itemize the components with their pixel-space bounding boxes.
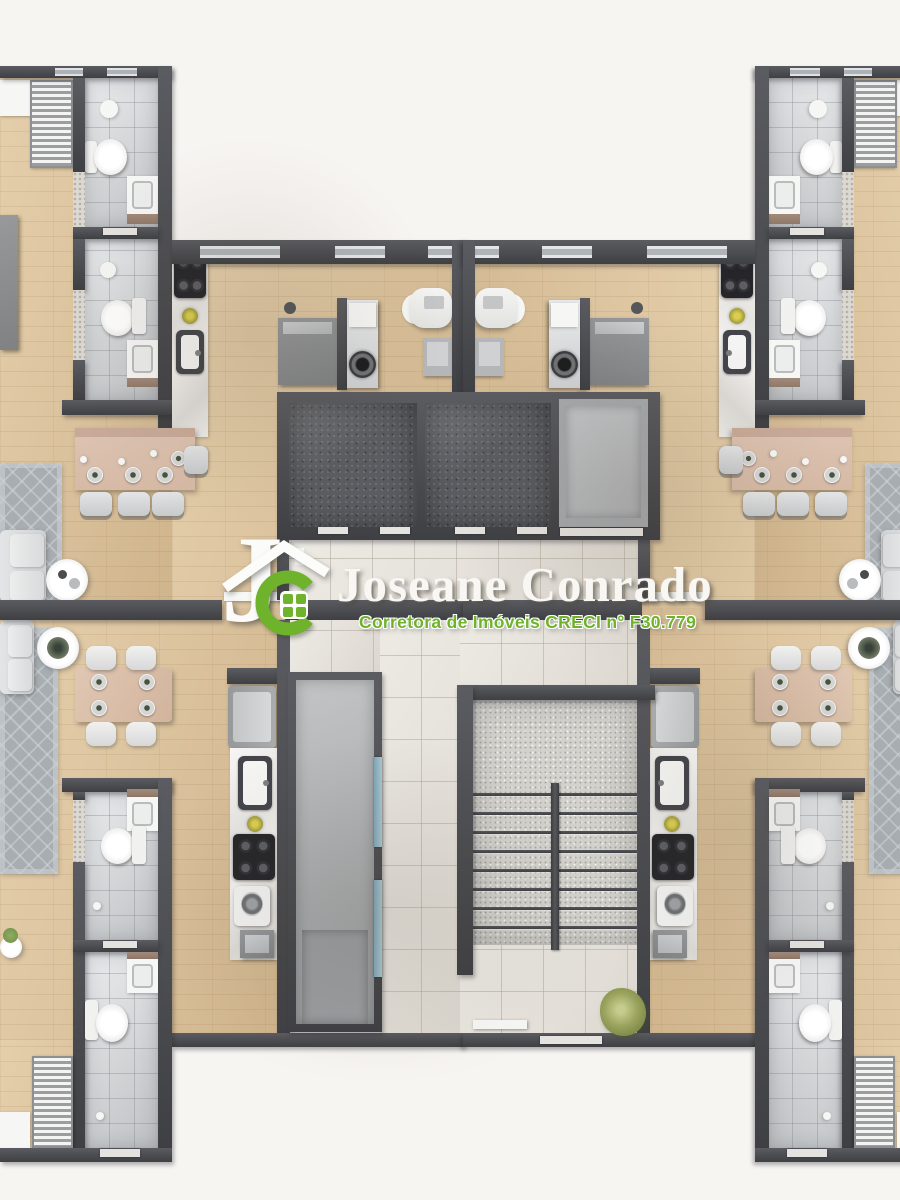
side-table [839,559,881,601]
glass-icon [80,456,87,463]
round-sink-icon [809,100,827,118]
window-icon [844,68,872,76]
fridge-icon [651,686,699,748]
washer-lid [349,303,376,327]
place-setting-icon [741,451,756,466]
kitchen-sink [655,756,689,810]
plant-icon [3,928,18,943]
side-table [46,559,88,601]
floral-centerpiece-icon [47,637,69,659]
wall [842,792,854,800]
washer-lid [551,303,578,327]
wall [73,862,85,1148]
wall [73,360,85,400]
wall [705,600,900,620]
low-cabinet-inner [245,935,269,953]
wall [62,400,172,415]
door-threshold-mosaic [73,800,85,862]
wall [755,1148,900,1162]
glass-icon [150,450,157,457]
wall [463,1033,755,1047]
wall [842,78,854,172]
wall [457,685,473,975]
kitchen-sink [238,756,272,810]
wall [637,620,650,1040]
dining-chair [771,646,801,670]
plant-icon [600,988,646,1036]
floor-plan-image: J Joseane Conrado Corretora de Imóveis C… [0,0,900,1200]
glass-icon [840,456,847,463]
bar-stool [152,492,184,516]
dining-chair [126,646,156,670]
glass-icon [770,450,777,457]
door-leaf [473,1020,527,1029]
vanity-counter [127,789,158,797]
bar-stool [719,446,743,474]
sofa-cushion [895,659,900,691]
vanity-counter [769,789,800,797]
fruit-bowl-icon [729,308,745,324]
dining-table [75,668,172,722]
door-threshold [790,941,824,948]
washer-porthole-icon [551,351,578,378]
round-sink-icon [100,262,116,278]
round-sink-icon [100,100,118,118]
bar-stool [118,492,150,516]
dining-chair [86,722,116,746]
door-threshold-mosaic [842,290,854,360]
cabinet [0,80,30,116]
dining-table [755,668,852,722]
laptop-icon [483,296,503,309]
vanity-sink [127,176,158,214]
tv-cabinet [0,215,18,350]
fruit-bowl-icon [664,816,680,832]
place-setting-icon [139,674,155,690]
window-icon [200,246,280,258]
place-setting-icon [772,674,788,690]
wall [842,360,854,400]
dining-chair [86,646,116,670]
wall [755,66,900,78]
washer-porthole-icon [349,351,376,378]
wall [755,66,769,440]
stove-icon [652,834,694,880]
kitchen-sink [723,330,751,374]
wall [337,298,347,390]
vanity-sink [127,340,158,378]
sofa-cushion [883,571,900,601]
stair-center-rail [551,783,559,950]
window-icon [647,246,727,258]
wall [842,862,854,1148]
sofa-cushion [883,534,900,567]
brand-title: Joseane Conrado [337,556,713,613]
vanity-sink [127,959,158,993]
window-icon [55,68,83,76]
seat-cube-top [479,342,500,366]
place-setting-icon [139,700,155,716]
bar-stool [743,492,775,516]
washer-icon [657,886,693,926]
bar-stool [815,492,847,516]
vanity-counter [769,378,800,387]
window-icon [790,68,820,76]
elevator-cab-floor [566,406,641,518]
wall [457,685,655,700]
place-setting-icon [824,467,840,483]
door-threshold-mosaic [842,172,854,228]
shower-drain-icon [93,902,101,910]
door-threshold [787,1149,827,1157]
door-threshold-mosaic [842,800,854,862]
vanity-counter [769,214,800,224]
decor-icon [847,578,858,589]
door-threshold [100,1149,140,1157]
bar-stool [184,446,208,474]
corridor-floor [380,620,460,1033]
waste-bin-icon [631,302,643,314]
wall [0,1148,172,1162]
laptop-icon [424,296,444,309]
decor-icon [58,570,67,579]
laundry-cabinet-top [283,322,332,334]
place-setting-icon [820,674,836,690]
utility-shaft-inner [302,930,368,1024]
laundry-cabinet-top [595,322,644,334]
vanity-sink [769,959,800,993]
window-icon [107,68,137,76]
wall [0,600,222,620]
wall [73,239,85,290]
window-icon [335,246,385,258]
sofa-cushion [895,625,900,657]
stove-icon [233,834,275,880]
sofa-cushion [10,571,44,601]
fruit-bowl-icon [247,816,263,832]
decor-icon [860,570,869,579]
sofa-cushion [10,534,44,567]
place-setting-icon [786,467,802,483]
door-threshold-mosaic [73,172,85,228]
place-setting-icon [157,467,173,483]
monogram-house-c-icon [218,533,333,651]
wall [158,778,172,1148]
low-cabinet-inner [658,935,682,953]
vanity-counter [127,952,158,959]
wall [580,298,590,390]
fridge-icon [228,686,276,748]
place-setting-icon [125,467,141,483]
sofa-cushion [8,659,32,691]
bar-stool [80,492,112,516]
washer-icon [234,886,270,926]
glass-icon [802,458,809,465]
wall [650,668,700,684]
door-threshold [103,941,137,948]
place-setting-icon [91,700,107,716]
vanity-counter [127,214,158,224]
seat-cube-top [427,342,448,366]
place-setting-icon [772,700,788,716]
door-threshold [103,228,137,235]
elevator-shaft [289,403,417,527]
vanity-sink [769,176,800,214]
elevator-shaft [425,403,551,527]
wardrobe [32,1056,73,1148]
wardrobe [30,80,73,168]
fruit-bowl-icon [182,308,198,324]
dining-chair [126,722,156,746]
wall [755,400,865,415]
glass-icon [118,458,125,465]
place-setting-icon [754,467,770,483]
wall [0,66,172,78]
shower-drain-icon [96,1112,104,1120]
vanity-sink [769,340,800,378]
cabinet [0,1112,30,1148]
bar-stool [777,492,809,516]
round-sink-icon [811,262,827,278]
wardrobe [854,1056,895,1148]
wall [227,668,277,684]
wall [73,792,85,800]
place-setting-icon [820,700,836,716]
glass-panel [374,757,382,847]
kitchen-sink [176,330,204,374]
wall [158,66,172,440]
wall [463,240,475,393]
shower-drain-icon [823,1112,831,1120]
wall [73,78,85,172]
wall [172,1033,464,1047]
shower-drain-icon [826,902,834,910]
place-setting-icon [91,674,107,690]
window-icon [542,246,592,258]
wall [755,778,769,1148]
glass-panel [374,880,382,977]
dining-chair [811,722,841,746]
wardrobe [854,80,897,168]
place-setting-icon [87,467,103,483]
dining-chair [811,646,841,670]
sofa-cushion [8,625,32,657]
dining-chair [771,722,801,746]
wall [842,239,854,290]
waste-bin-icon [284,302,296,314]
door-threshold [540,1036,602,1044]
door-threshold [790,228,824,235]
brand-watermark: J Joseane Conrado Corretora de Imóveis C… [215,526,697,654]
brand-subtitle: Corretora de Imóveis CRECI n° F30.779 [359,612,696,633]
vanity-counter [769,952,800,959]
decor-icon [69,578,80,589]
vanity-counter [127,378,158,387]
door-threshold-mosaic [73,290,85,360]
floral-centerpiece-icon [858,637,880,659]
